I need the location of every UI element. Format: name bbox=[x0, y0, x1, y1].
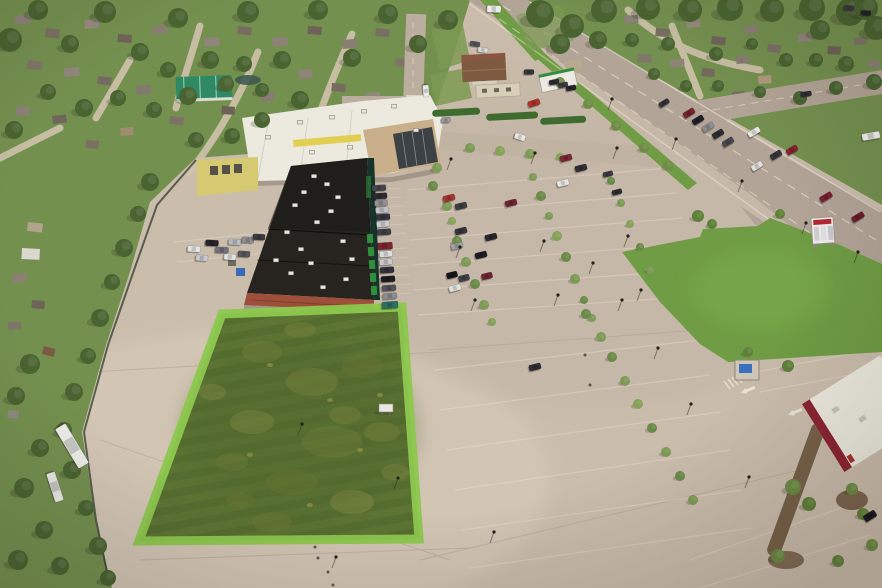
photo-vignette bbox=[0, 0, 882, 588]
aerial-photo-canvas bbox=[0, 0, 882, 588]
aerial-photo bbox=[0, 0, 882, 588]
